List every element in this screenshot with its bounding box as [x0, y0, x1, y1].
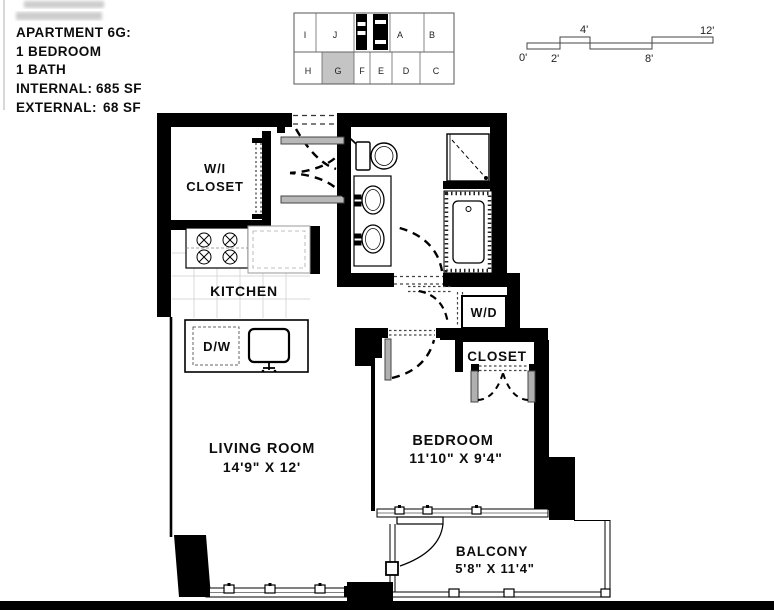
living-room-windows: [206, 583, 348, 597]
dishwasher-label: D/W: [203, 339, 231, 354]
scale-0: 0': [519, 52, 527, 64]
closet-door-swing-lower: [290, 173, 344, 197]
keyplan-unit-g: G: [334, 66, 341, 76]
bifold-leaf-left: [471, 371, 478, 402]
bifold-leaf-right: [528, 371, 535, 402]
vanity-sinks: [354, 176, 391, 266]
window-mullion: [395, 507, 404, 514]
cropped-text-remnant: [16, 1, 104, 20]
closet-door-leaf-lower: [281, 196, 344, 203]
keyplan-unit-b: B: [429, 30, 435, 40]
scale-4: 4': [580, 24, 588, 36]
shower-stall: [447, 134, 489, 181]
living-room-label: LIVING ROOM: [209, 441, 315, 457]
scale-8: 8': [645, 53, 653, 65]
keyplan-unit-i: I: [304, 30, 307, 40]
bedroom-count: 1 BEDROOM: [16, 44, 101, 59]
toilet-fixture: [356, 142, 397, 170]
keyplan-unit-e: E: [378, 66, 384, 76]
apartment-title: APARTMENT 6G:: [16, 25, 131, 40]
vestibule-door-swing: [419, 291, 448, 324]
bifold-swing-right: [503, 373, 528, 400]
floorplan-page: APARTMENT 6G: 1 BEDROOM 1 BATH INTERNAL:…: [0, 0, 774, 610]
keyplan-unit-a: A: [397, 30, 403, 40]
bathroom: [354, 134, 492, 284]
bifold-swing-left: [478, 373, 503, 400]
railing-post: [449, 589, 459, 597]
floorplan-drawing: APARTMENT 6G: 1 BEDROOM 1 BATH INTERNAL:…: [0, 0, 774, 610]
keyplan-unit-h: H: [305, 66, 312, 76]
internal-area-label: INTERNAL:: [16, 81, 92, 96]
window-mullion: [423, 507, 432, 514]
window-mullion: [265, 585, 275, 593]
bedroom-closet-label: CLOSET: [467, 349, 527, 364]
keyplan-unit-d: D: [403, 66, 410, 76]
building-core: [356, 14, 388, 50]
floor-plan: W/I CLOSET: [0, 113, 774, 610]
balcony-door-swing: [400, 524, 443, 566]
left-edge-artifact: [3, 0, 5, 110]
closet-door-leaf-upper: [281, 137, 344, 144]
keyplan-unit-f: F: [359, 66, 365, 76]
external-area-label: EXTERNAL:: [16, 100, 97, 115]
header: APARTMENT 6G: 1 BEDROOM 1 BATH INTERNAL:…: [16, 25, 142, 115]
keyplan-unit-c: C: [433, 66, 440, 76]
balcony-door-leaf: [397, 517, 443, 524]
window-mullion: [224, 585, 234, 593]
washer-dryer-label: W/D: [471, 306, 498, 320]
washer-dryer: W/D: [462, 296, 506, 328]
railing-post: [386, 562, 398, 575]
railing-post: [504, 589, 514, 597]
kitchen-island: D/W: [185, 320, 308, 372]
balcony-dimensions: 5'8" X 11'4": [455, 561, 534, 576]
key-plan: I J A B H G F E D C: [294, 13, 454, 84]
bedroom-closet: CLOSET: [467, 349, 535, 402]
bathroom-door: [394, 227, 443, 284]
bedroom-door-swing: [392, 340, 434, 378]
kitchen-label: KITCHEN: [210, 283, 278, 299]
balcony: BALCONY 5'8" X 11'4": [386, 517, 610, 597]
bedroom-windows: [377, 505, 548, 517]
scale-bar: 0' 2' 4' 8' 12': [519, 24, 714, 65]
wi-closet-label-1: W/I: [204, 161, 226, 176]
external-area-value: 68 SF: [103, 100, 141, 115]
bedroom-label: BEDROOM: [412, 433, 493, 449]
balcony-label: BALCONY: [456, 544, 528, 559]
scale-12: 12': [700, 25, 714, 37]
internal-area-value: 685 SF: [96, 81, 142, 96]
window-mullion: [315, 585, 325, 593]
living-room-dimensions: 14'9" X 12': [223, 459, 301, 475]
bedroom-dimensions: 11'10" X 9'4": [409, 450, 502, 466]
wi-closet-label-2: CLOSET: [186, 179, 244, 194]
keyplan-unit-j: J: [333, 30, 338, 40]
bath-count: 1 BATH: [16, 62, 66, 77]
kitchen-counter: [248, 226, 310, 273]
bathtub: [444, 191, 492, 273]
scale-2: 2': [551, 53, 559, 65]
window-mullion: [472, 507, 481, 514]
bathroom-door-swing: [396, 227, 442, 271]
bedroom-door-leaf: [385, 339, 391, 380]
railing-post: [601, 589, 610, 597]
stove: [186, 228, 248, 268]
